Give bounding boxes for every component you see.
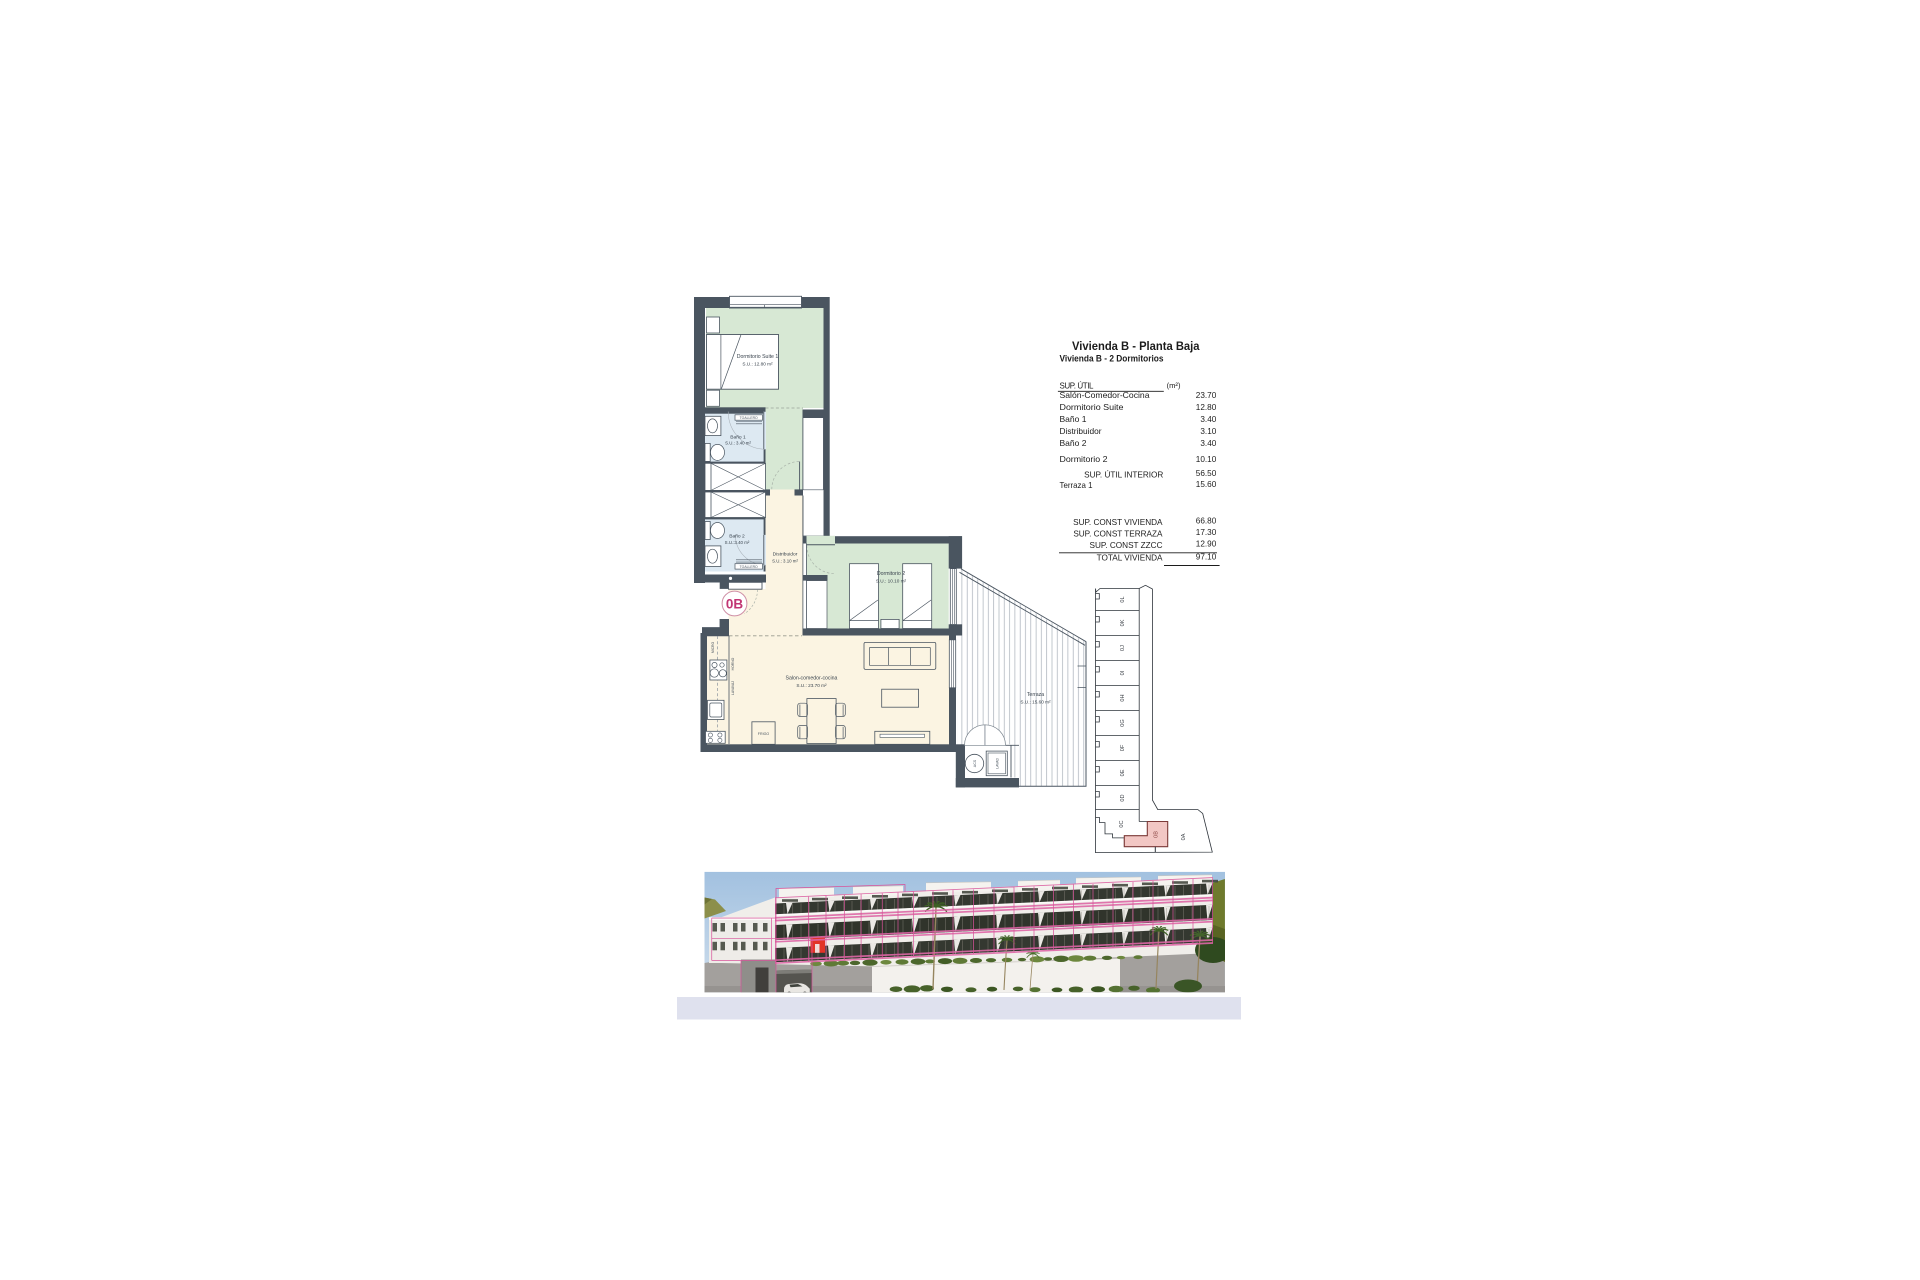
svg-text:0D: 0D [1120,794,1126,801]
svg-text:SUP. ÚTIL: SUP. ÚTIL [1060,382,1095,391]
svg-text:0B: 0B [726,597,744,612]
svg-text:Vivienda B - Planta Baja: Vivienda B - Planta Baja [1072,339,1200,353]
svg-text:12.90: 12.90 [1196,540,1217,549]
svg-text:0F: 0F [1120,744,1126,751]
svg-text:S.U.: 3.10 m²: S.U.: 3.10 m² [772,559,798,564]
svg-text:3.10: 3.10 [1200,427,1216,436]
svg-text:Dormitorio Suite: Dormitorio Suite [1060,403,1124,412]
svg-text:Baño 2: Baño 2 [1060,439,1087,448]
svg-text:0B: 0B [1154,831,1160,838]
svg-text:10.10: 10.10 [1196,455,1217,464]
svg-text:FRIGO: FRIGO [758,732,770,736]
svg-text:Terraza 1: Terraza 1 [1060,481,1093,490]
svg-text:0A: 0A [1181,833,1187,840]
svg-text:0G: 0G [1120,719,1126,726]
svg-text:(m²): (m²) [1167,381,1181,390]
svg-text:15.60: 15.60 [1196,480,1217,489]
svg-text:SUP. ÚTIL INTERIOR: SUP. ÚTIL INTERIOR [1084,469,1163,479]
svg-text:LAVAVAJ: LAVAVAJ [731,681,735,695]
svg-text:Dormitorio 2: Dormitorio 2 [877,571,905,577]
svg-text:0H: 0H [1120,694,1126,701]
svg-text:3.40: 3.40 [1200,439,1216,448]
svg-text:Distribuidor: Distribuidor [1060,427,1102,436]
svg-text:S.U.: 10.10 m²: S.U.: 10.10 m² [876,579,907,584]
svg-text:56.50: 56.50 [1196,469,1217,478]
svg-text:TOTAL VIVIENDA: TOTAL VIVIENDA [1097,553,1163,562]
svg-text:66.80: 66.80 [1196,517,1217,526]
svg-text:Salón-Comedor-Cocina: Salón-Comedor-Cocina [1060,391,1150,400]
svg-text:Dormitorio 2: Dormitorio 2 [1060,455,1108,464]
svg-text:Distribuidor: Distribuidor [773,552,798,558]
svg-text:SUP. CONST VIVIENDA: SUP. CONST VIVIENDA [1073,518,1163,527]
svg-text:SUP. CONST ZZCC: SUP. CONST ZZCC [1090,541,1163,550]
svg-text:HORNO: HORNO [731,657,735,670]
svg-text:Dormitorio Suite 1: Dormitorio Suite 1 [737,354,779,360]
svg-text:S.U.: 23.70 m²: S.U.: 23.70 m² [796,683,827,688]
svg-text:97.10: 97.10 [1196,552,1217,561]
svg-text:SUP. CONST TERRAZA: SUP. CONST TERRAZA [1073,530,1163,539]
svg-text:TOALLERO: TOALLERO [740,565,758,569]
svg-text:S.U.: 15.60 m²: S.U.: 15.60 m² [1020,700,1051,705]
svg-text:0E: 0E [1120,769,1126,776]
svg-text:Baño 1: Baño 1 [730,434,746,440]
svg-text:MICRO: MICRO [711,641,715,653]
svg-text:ACS: ACS [973,759,977,767]
svg-text:S.U.:3.40 m²: S.U.:3.40 m² [725,540,750,545]
svg-text:0J: 0J [1120,645,1126,651]
svg-text:17.30: 17.30 [1196,528,1217,537]
svg-text:Baño 2: Baño 2 [729,534,745,540]
svg-text:S.U.: 12.80 m²: S.U.: 12.80 m² [742,362,773,367]
svg-text:0L: 0L [1120,596,1126,602]
svg-text:Baño 1: Baño 1 [1060,415,1087,424]
svg-text:Vivienda B - 2 Dormitorios: Vivienda B - 2 Dormitorios [1060,353,1164,363]
svg-text:TOALLERO: TOALLERO [740,416,758,420]
svg-text:Terraza: Terraza [1027,692,1044,698]
svg-text:0K: 0K [1120,619,1126,626]
svg-text:12.80: 12.80 [1196,403,1217,412]
svg-text:Salon-comedor-cocina: Salon-comedor-cocina [786,676,838,682]
svg-text:3.40: 3.40 [1200,415,1216,424]
svg-text:S.U.: 3.40 m²: S.U.: 3.40 m² [725,441,751,446]
svg-text:0I: 0I [1120,670,1126,675]
svg-text:0C: 0C [1119,820,1125,827]
svg-text:23.70: 23.70 [1196,391,1217,400]
svg-text:LAVAD: LAVAD [995,758,999,769]
